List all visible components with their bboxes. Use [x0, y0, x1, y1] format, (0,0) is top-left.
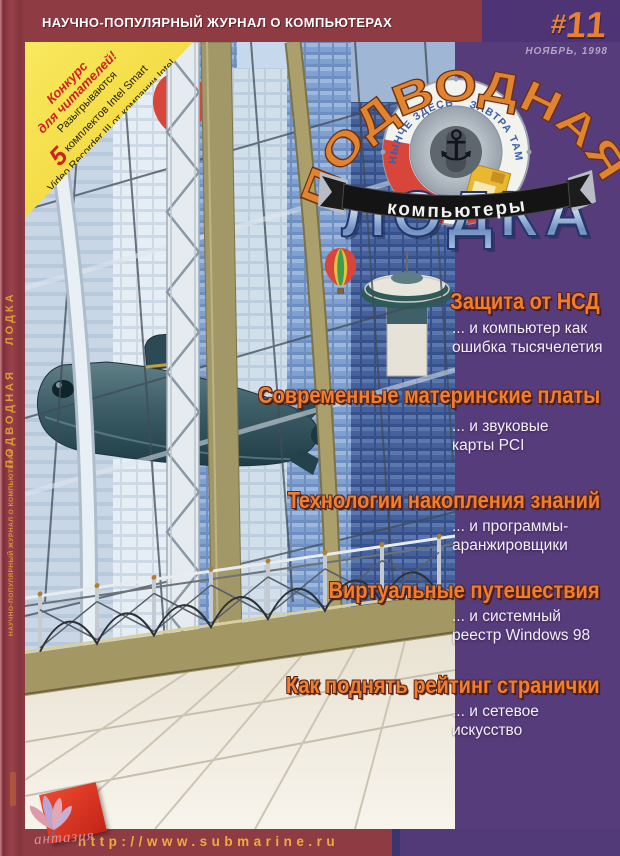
publisher-script-name: антазия — [33, 828, 95, 849]
anchor-icon: ⚓ — [437, 121, 475, 170]
headline-2: Современные материнские платы — [258, 382, 600, 409]
headline-4: Виртуальные путешествия — [329, 577, 600, 604]
masthead-tagline: НАУЧНО-ПОПУЛЯРНЫЙ ЖУРНАЛ О КОМПЬЮТЕРАХ — [42, 15, 392, 30]
headline-3-subtitle: ... и программы- аранжировщики — [452, 517, 568, 555]
headline-1: Защита от НСД — [451, 288, 600, 315]
spine: ПОДВОДНАЯ ЛОДКА НАУЧНО-ПОПУЛЯРНЫЙ ЖУРНАЛ… — [0, 0, 25, 856]
issue-digits: 11 — [564, 4, 610, 45]
bottom-divider-stripe — [392, 829, 400, 856]
headline-4-subtitle: ... и системный реестр Windows 98 — [452, 607, 590, 645]
headline-3: Технологии накопления знаний — [287, 487, 600, 514]
publisher-logo: антазия — [28, 784, 132, 854]
headline-2-subtitle: ... и звуковые карты PCI — [452, 417, 549, 455]
magazine-logo: НЫНЧЕ ЗДЕСЬ ЗАВТРА ТАМ ⚓ ПОДВОДНАЯ ЛОДКА… — [318, 44, 620, 252]
magazine-cover: НАУЧНО-ПОПУЛЯРНЫЙ ЖУРНАЛ О КОМПЬЮТЕРАХ #… — [0, 0, 620, 856]
spine-fine-print — [10, 772, 16, 806]
spine-tagline: НАУЧНО-ПОПУЛЯРНЫЙ ЖУРНАЛ О КОМПЬЮТЕРАХ — [8, 486, 15, 636]
headline-5: Как поднять рейтинг странички — [286, 672, 600, 699]
masthead-band: НАУЧНО-ПОПУЛЯРНЫЙ ЖУРНАЛ О КОМПЬЮТЕРАХ — [0, 0, 482, 42]
headline-1-subtitle: ... и компьютер как ошибка тысячелетия — [452, 319, 603, 357]
headline-5-subtitle: ... и сетевое искусство — [452, 702, 539, 740]
spine-title: ПОДВОДНАЯ ЛОДКА — [4, 158, 16, 468]
bottom-purple-block — [400, 829, 620, 856]
issue-number: #11 — [549, 4, 610, 46]
